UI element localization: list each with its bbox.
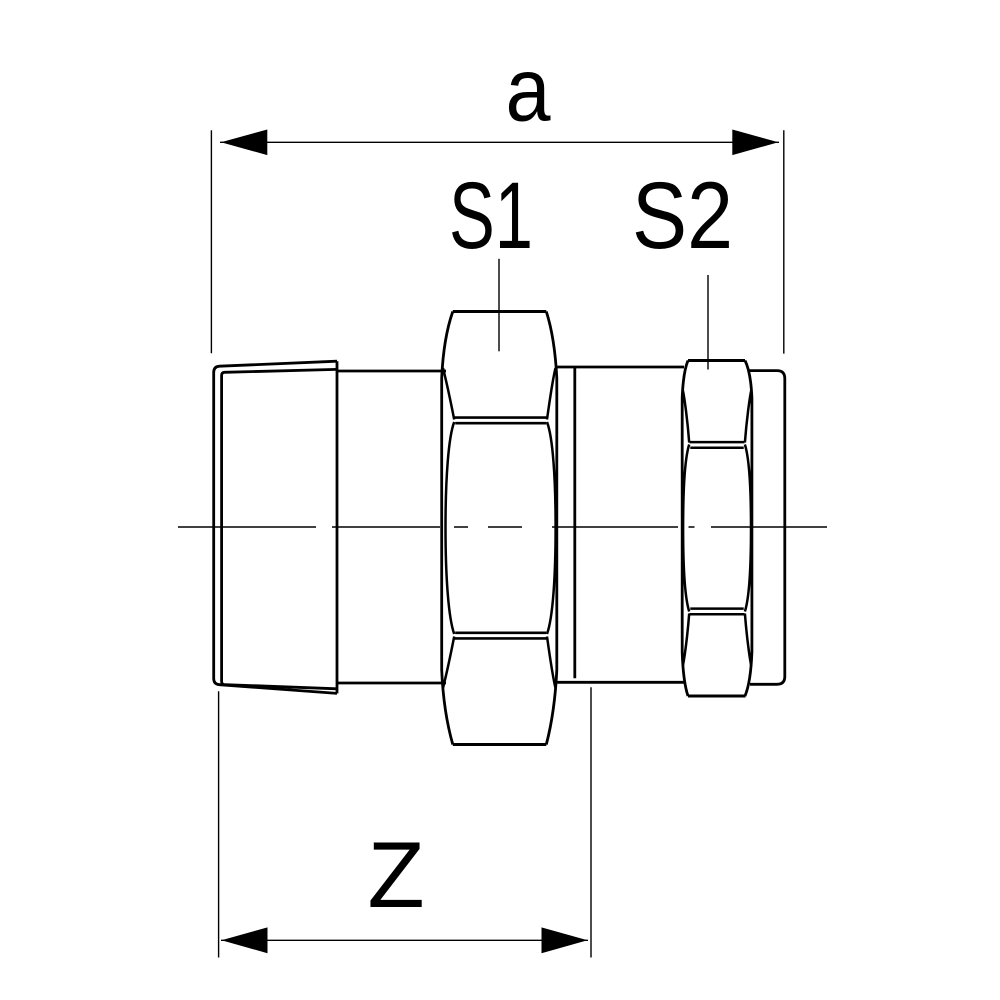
- svg-text:Z: Z: [367, 822, 424, 927]
- svg-text:a: a: [506, 41, 552, 141]
- svg-text:S1: S1: [449, 163, 533, 269]
- svg-text:S2: S2: [632, 163, 733, 269]
